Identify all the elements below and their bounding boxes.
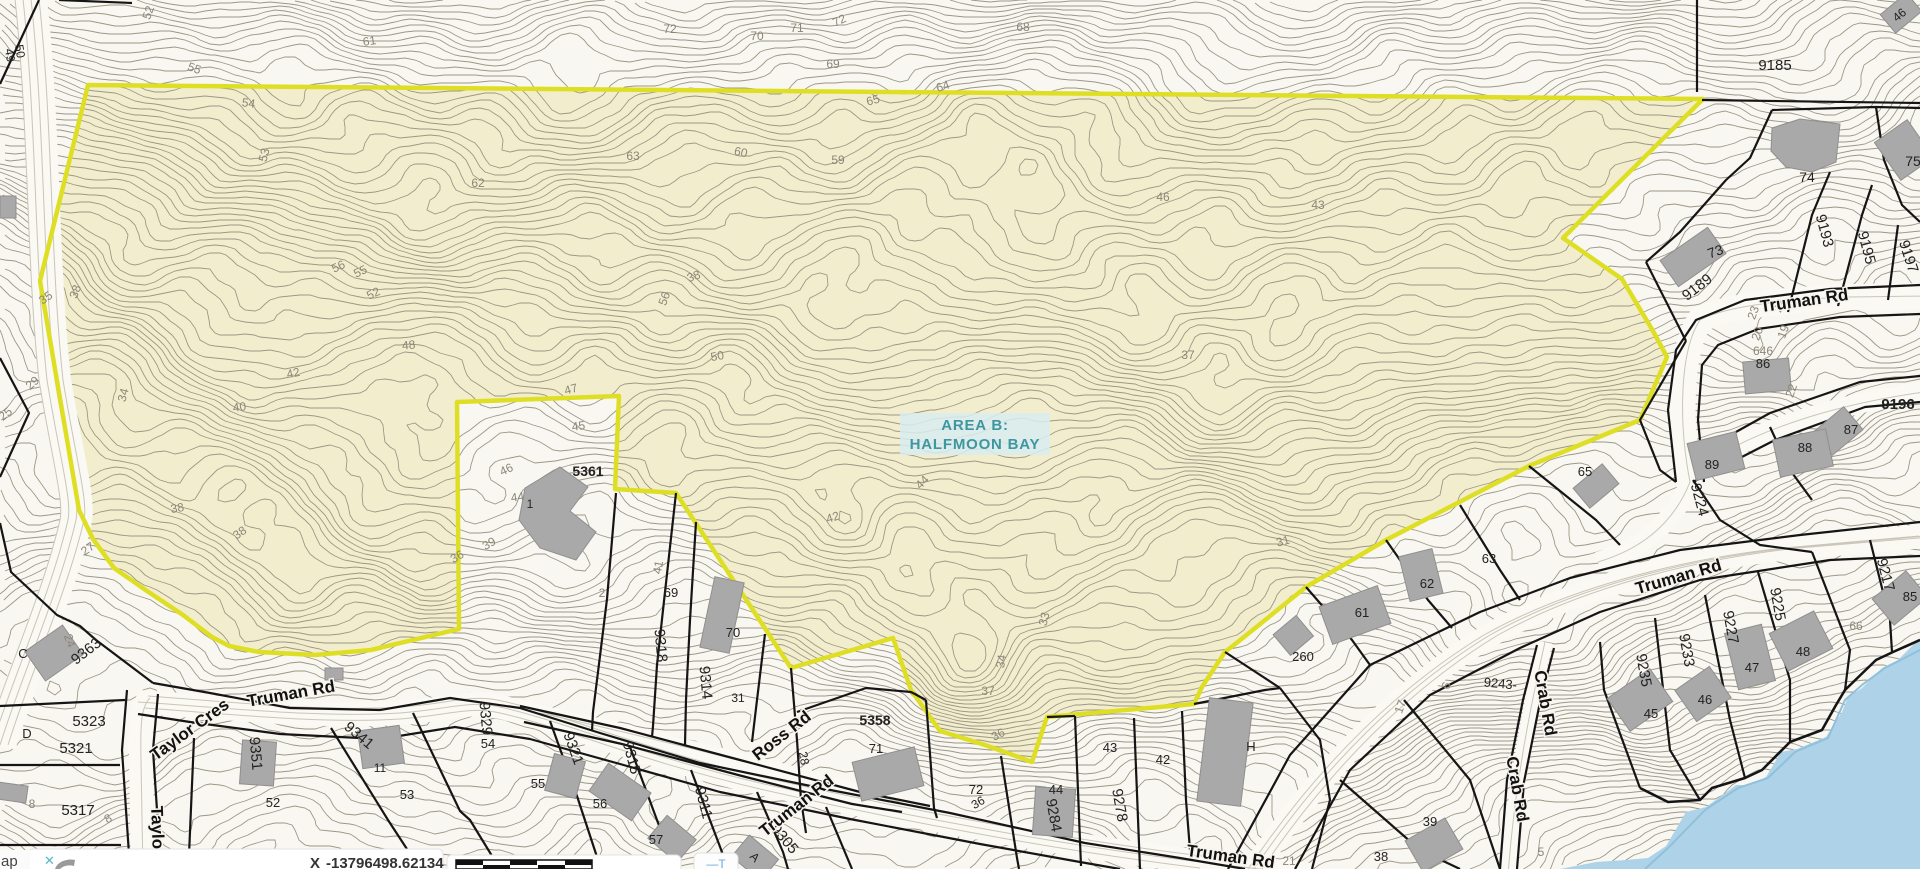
svg-text:40: 40 [232,399,247,415]
svg-text:-13796498.62134: -13796498.62134 [326,855,444,869]
svg-text:71: 71 [790,21,804,35]
svg-text:9185: 9185 [1758,57,1791,74]
svg-text:89: 89 [1705,457,1719,472]
svg-text:X: X [310,855,320,869]
svg-text:46: 46 [1156,190,1170,204]
svg-text:5321: 5321 [59,740,92,757]
svg-text:9314: 9314 [696,665,716,700]
svg-text:C: C [18,646,27,661]
svg-text:48: 48 [401,337,416,352]
svg-text:5323: 5323 [72,713,105,730]
svg-text:44: 44 [1049,782,1063,797]
svg-text:9329: 9329 [476,701,496,736]
svg-text:88: 88 [1798,440,1812,455]
svg-text:86: 86 [1756,356,1770,371]
svg-text:31: 31 [731,691,745,705]
svg-text:87: 87 [1844,422,1858,437]
svg-text:11: 11 [374,761,387,775]
svg-text:21: 21 [1282,854,1296,868]
svg-text:71: 71 [869,741,883,756]
svg-text:48: 48 [1796,644,1810,659]
svg-text:D: D [22,726,31,741]
svg-text:5: 5 [1538,845,1545,859]
svg-text:HALFMOON BAY: HALFMOON BAY [910,436,1041,453]
svg-text:50: 50 [12,44,28,60]
svg-text:38: 38 [170,500,186,516]
svg-text:69: 69 [826,57,840,71]
svg-text:59: 59 [831,153,845,167]
svg-text:✕: ✕ [44,853,55,868]
svg-text:52: 52 [266,795,280,810]
svg-text:46: 46 [1698,692,1712,707]
svg-text:54: 54 [481,736,495,751]
svg-text:2: 2 [599,586,606,600]
svg-text:62: 62 [471,176,485,190]
svg-text:H: H [1246,739,1255,754]
svg-text:45: 45 [571,418,586,434]
svg-text:8: 8 [29,797,36,811]
svg-text:65: 65 [1578,464,1592,479]
svg-text:5358: 5358 [859,712,890,728]
svg-text:61: 61 [1355,605,1369,620]
svg-text:—T: —T [706,857,726,869]
svg-text:75: 75 [1905,153,1920,169]
svg-text:9351: 9351 [246,736,266,771]
svg-text:9196: 9196 [1881,396,1914,413]
svg-text:61: 61 [362,33,377,49]
svg-text:57: 57 [649,832,663,847]
svg-text:1: 1 [527,497,534,511]
svg-text:45: 45 [1644,706,1658,721]
svg-text:28: 28 [796,751,812,767]
svg-text:47: 47 [1745,660,1759,675]
svg-text:56: 56 [593,796,607,811]
svg-text:42: 42 [1156,752,1170,767]
svg-text:53: 53 [400,787,414,802]
svg-text:37: 37 [981,684,995,698]
svg-text:43: 43 [1311,198,1325,212]
svg-text:34: 34 [993,653,1009,669]
svg-text:ap: ap [1,853,18,869]
svg-text:37: 37 [1181,348,1195,362]
svg-text:63: 63 [1482,551,1496,566]
svg-text:70: 70 [750,29,764,43]
svg-text:50: 50 [710,348,726,364]
svg-text:43: 43 [1103,740,1117,755]
svg-text:72: 72 [663,22,677,36]
svg-text:55: 55 [531,776,545,791]
svg-text:63: 63 [626,149,640,163]
svg-text:AREA B:: AREA B: [941,417,1009,434]
svg-text:9318: 9318 [651,628,671,663]
svg-text:5317: 5317 [61,802,94,819]
svg-text:66: 66 [1849,619,1863,633]
svg-text:74: 74 [1799,169,1815,185]
svg-text:54: 54 [241,95,256,111]
svg-text:68: 68 [1016,20,1030,34]
svg-text:85: 85 [1903,589,1917,604]
svg-text:69: 69 [664,585,678,600]
svg-text:39: 39 [1423,814,1437,829]
svg-text:62: 62 [1420,576,1434,591]
svg-text:38: 38 [1374,849,1388,864]
svg-text:9243-: 9243- [1483,675,1517,693]
svg-text:5361: 5361 [572,463,603,479]
svg-text:41: 41 [650,559,666,575]
svg-text:70: 70 [726,625,740,640]
svg-text:260: 260 [1292,649,1314,664]
svg-text:44: 44 [510,489,525,505]
